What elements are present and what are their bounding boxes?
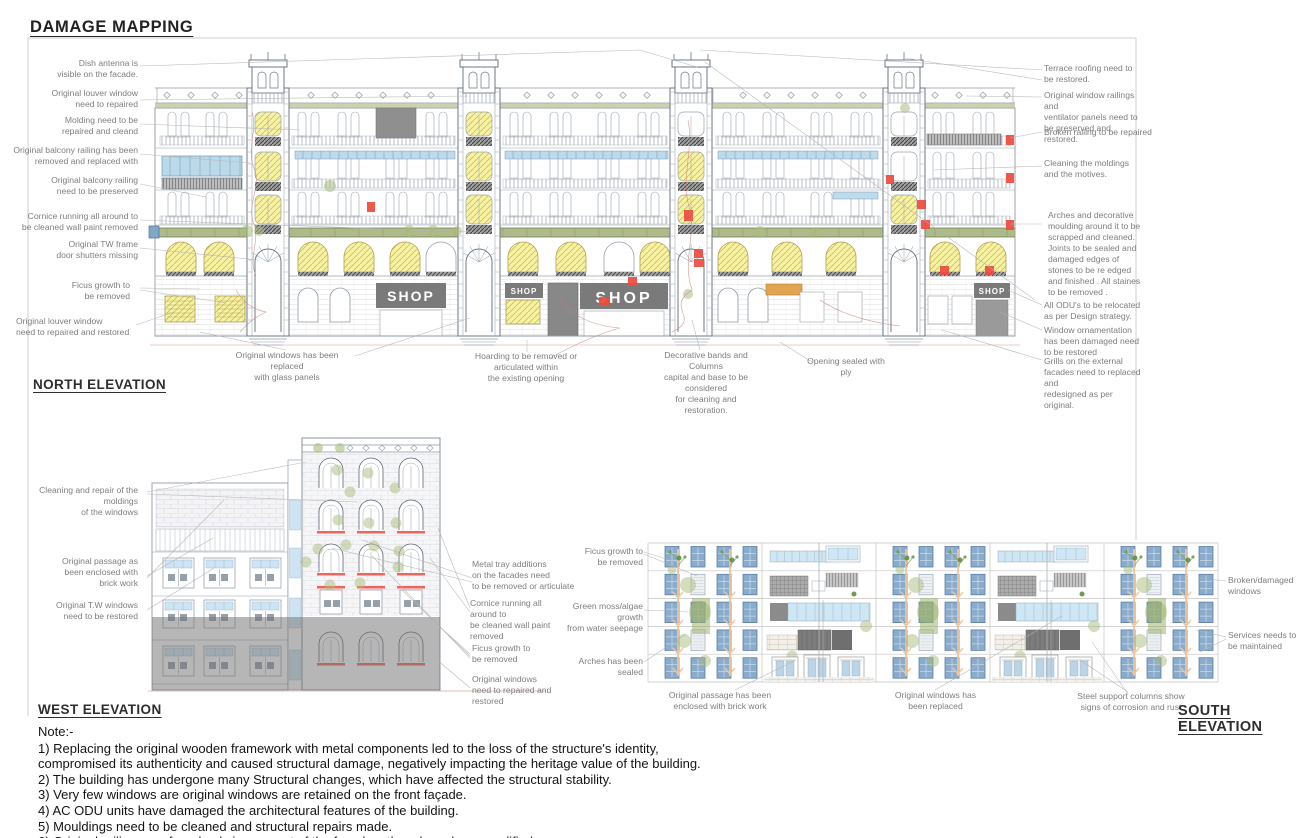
damage-mapping-sheet: SHOPSHOPSHOPSHOP DAMAGE MAPPING Dish ant… [0, 0, 1310, 838]
note-item: 2) The building has undergone many Struc… [38, 772, 1288, 788]
annotation-west-tw-windows: Original T.W windows need to be restored [35, 600, 138, 622]
annotation-dish-antenna: Dish antenna is visible on the facade. [20, 58, 138, 80]
note-item: 5) Mouldings need to be cleaned and stru… [38, 819, 1288, 835]
annotation-cleaning-moldings: Cleaning the moldings and the motives. [1044, 158, 1140, 180]
svg-text:SHOP: SHOP [511, 287, 538, 296]
annotation-louver-window: Original louver window need to repaired [20, 88, 138, 110]
annotation-green-moss: Green moss/algae growth from water seepa… [545, 601, 643, 634]
annotation-molding: Molding need to be repaired and cleand [20, 115, 138, 137]
annotation-glass-panels: Original windows has been replaced with … [218, 350, 356, 383]
annotation-west-passage: Original passage as been enclosed with b… [40, 556, 138, 589]
annotation-broken-windows: Broken/damaged windows [1228, 575, 1310, 597]
annotation-railing-removed: Original balcony railing has been remove… [8, 145, 138, 167]
page-title: DAMAGE MAPPING [30, 18, 193, 37]
annotation-hoarding: Hoarding to be removed or articulated wi… [460, 351, 592, 384]
annotation-arches-sealed: Arches has been sealed [565, 656, 643, 678]
svg-text:SHOP: SHOP [979, 287, 1006, 296]
notes-block: Note:- 1) Replacing the original wooden … [38, 724, 1288, 838]
annotation-cornice-north: Cornice running all around to be cleaned… [8, 211, 138, 233]
north-elevation-label: NORTH ELEVATION [33, 377, 166, 392]
annotation-west-ficus: Ficus growth to be removed [472, 643, 542, 665]
annotation-terrace-roofing: Terrace roofing need to be restored. [1044, 63, 1140, 85]
notes-heading: Note:- [38, 724, 1288, 740]
note-item: 4) AC ODU units have damaged the archite… [38, 803, 1288, 819]
west-elevation-label: WEST ELEVATION [38, 702, 162, 717]
annotation-south-windows: Original windows has been replaced [878, 690, 993, 712]
annotation-services: Services needs to be maintained [1228, 630, 1298, 652]
note-item: 1) Replacing the original wooden framewo… [38, 741, 1288, 772]
annotation-odu-relocated: All ODU's to be relocated as per Design … [1044, 300, 1144, 322]
annotation-opening-ply: Opening sealed with ply [806, 356, 886, 378]
annotation-ornamentation: Window ornamentation has been damaged ne… [1044, 325, 1144, 358]
svg-text:SHOP: SHOP [387, 288, 435, 304]
annotation-ficus-north: Ficus growth to be removed [30, 280, 130, 302]
annotation-louver-restored: Original louver window need to repaired … [16, 316, 138, 338]
annotation-west-windows: Original windows need to repaired and re… [472, 674, 562, 707]
annotation-grills: Grills on the external facades need to r… [1044, 356, 1144, 411]
annotation-steel-columns: Steel support columns show signs of corr… [1072, 691, 1190, 713]
annotation-decorative-bands: Decorative bands and Columns capital and… [656, 350, 756, 416]
annotation-south-passage: Original passage has been enclosed with … [660, 690, 780, 712]
annotation-south-ficus: Ficus growth to be removed [565, 546, 643, 568]
note-item: 3) Very few windows are original windows… [38, 787, 1288, 803]
note-item: 6) Original railings are found only in o… [38, 834, 1288, 838]
annotation-tw-frame: Original TW frame door shutters missing [20, 239, 138, 261]
annotation-railing-preserved: Original balcony railing need to be pres… [20, 175, 138, 197]
annotation-broken-railing: Broken railing to be repaired [1044, 127, 1152, 138]
annotation-west-moldings: Cleaning and repair of the moldings of t… [10, 485, 138, 518]
annotation-arches-moulding: Arches and decorative moulding around it… [1048, 210, 1144, 298]
